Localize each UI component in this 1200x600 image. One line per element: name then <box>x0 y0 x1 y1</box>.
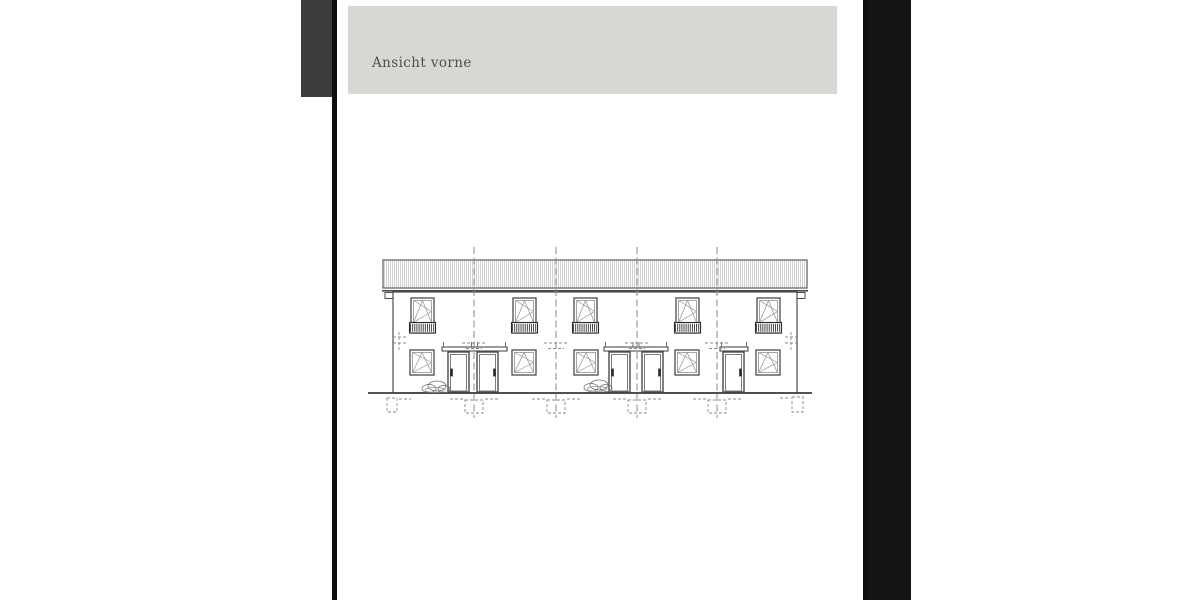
entry-door <box>477 352 498 392</box>
lower-window <box>675 350 699 375</box>
entry-door <box>642 352 663 392</box>
lower-window <box>512 350 536 375</box>
balcony-railing <box>756 323 782 334</box>
entry-door <box>448 352 469 392</box>
edge-foundation-marker <box>780 397 803 412</box>
edge-foundation-marker <box>387 398 411 412</box>
balcony-railing <box>410 323 436 334</box>
entry-door <box>609 352 630 392</box>
balcony-railing <box>675 323 701 334</box>
balcony-railing <box>512 323 538 334</box>
left-edge-artifact <box>301 0 332 97</box>
viewer-stage: Ansicht vorne <box>0 0 1200 600</box>
page-border-left <box>332 0 337 600</box>
lower-window <box>410 350 434 375</box>
elevation-drawing <box>0 0 1200 600</box>
balcony-railing <box>573 323 599 334</box>
lower-window <box>574 350 598 375</box>
right-edge-artifact <box>868 0 911 600</box>
entry-door <box>723 352 744 392</box>
lower-window <box>756 350 780 375</box>
